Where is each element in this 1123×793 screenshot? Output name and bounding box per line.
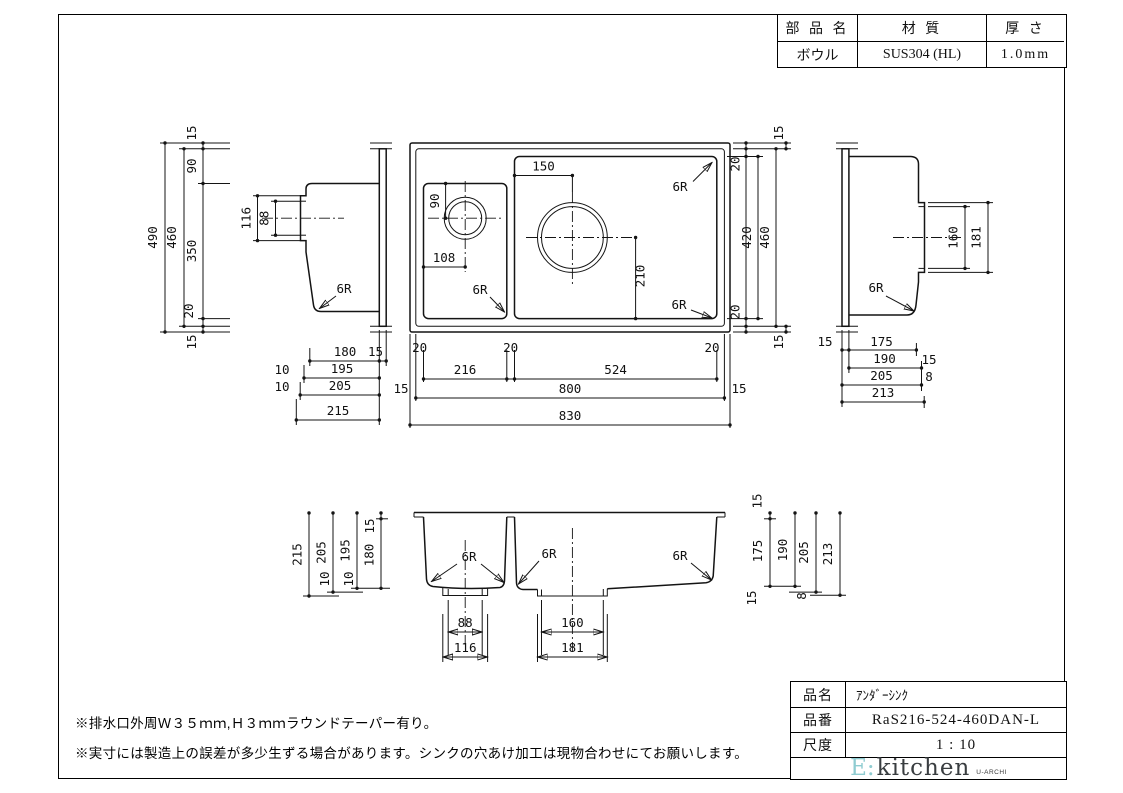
- spec-table: 部 品 名 材 質 厚 さ ボウル SUS304 (HL) 1.0mm: [777, 14, 1067, 68]
- logo: E:kitchen U-ARCHI: [791, 757, 1066, 777]
- dim-label: 181: [561, 640, 584, 655]
- dim-label: 15: [817, 334, 832, 349]
- dim-label: 10: [274, 362, 289, 377]
- spec-header-thickness: 厚 さ: [986, 15, 1064, 41]
- dim-label: 420: [739, 226, 754, 249]
- drawing-scale: 1 : 10: [845, 732, 1066, 757]
- dim-label: 215: [327, 403, 350, 418]
- dim-label: 8: [794, 592, 809, 600]
- dim-label: 160: [946, 226, 961, 249]
- front-left-chain: 215 205 195 180 15 10 10: [290, 513, 391, 596]
- dim-label: 20: [503, 340, 518, 355]
- radius-label: 6R: [671, 297, 687, 312]
- dim-label: 8: [925, 369, 933, 384]
- dim-label: 88: [257, 211, 272, 226]
- logo-prefix: E:: [850, 755, 875, 781]
- note-tolerance: ※実寸には製造上の誤差が多少生ずる場合があります。シンクの穴あけ加工は現物合わせ…: [75, 742, 748, 762]
- dim-label: 213: [872, 385, 895, 400]
- radius-label: 6R: [868, 280, 884, 295]
- logo-name: kitchen: [877, 755, 971, 781]
- dim-label: 160: [561, 615, 584, 630]
- dim-label: 90: [184, 158, 199, 173]
- dim-label: 15: [362, 518, 377, 533]
- dim-label: 524: [604, 362, 627, 377]
- dim-label: 116: [239, 207, 254, 230]
- spec-thickness: 1.0mm: [986, 41, 1064, 67]
- dim-label: 15: [393, 381, 408, 396]
- title-block: 品名 ｱﾝﾀﾞｰｼﾝｸ 品番 RaS216-524-460DAN-L 尺度 1 …: [790, 681, 1067, 780]
- dim-label: 350: [184, 240, 199, 263]
- dim-label: 460: [757, 226, 772, 249]
- dim-label: 15: [771, 125, 786, 140]
- dim-label: 190: [873, 351, 896, 366]
- front-view: 6R 6R 6R: [414, 513, 725, 653]
- title-label-number: 品番: [791, 707, 845, 732]
- dim-label: 210: [633, 265, 648, 288]
- dim-label: 205: [329, 378, 352, 393]
- dim-label: 15: [368, 344, 383, 359]
- dim-label: 10: [341, 571, 356, 586]
- radius-label: 6R: [461, 549, 477, 564]
- radius-label: 6R: [336, 281, 352, 296]
- dim-label: 460: [164, 226, 179, 249]
- dim-label: 116: [454, 640, 477, 655]
- dim-label: 20: [728, 156, 743, 171]
- right-side-bottom-chain: 15 175 190 15 205 8 213: [817, 330, 936, 408]
- dim-label: 195: [331, 361, 354, 376]
- left-side-bottom-chain: 180 15 195 10 205 10 215: [274, 330, 386, 425]
- left-side-view: 116 88 6R: [239, 149, 387, 326]
- dim-label: 20: [704, 340, 719, 355]
- radius-label: 6R: [541, 546, 557, 561]
- left-dim-chain: 490 460 15 90 350 20 15: [145, 125, 392, 349]
- dim-label: 195: [338, 539, 353, 562]
- dim-label: 20: [728, 304, 743, 319]
- title-label-scale: 尺度: [791, 732, 845, 757]
- dim-label: 10: [274, 379, 289, 394]
- dim-label: 15: [921, 352, 936, 367]
- drawing-sheet: 150 90 108 210 6R 6R 6R 116: [0, 0, 1123, 793]
- dim-label: 190: [775, 539, 790, 562]
- dim-label: 215: [290, 543, 305, 566]
- spec-material: SUS304 (HL): [857, 41, 986, 67]
- dim-label: 10: [317, 571, 332, 586]
- dim-label: 800: [559, 381, 582, 396]
- dim-label: 20: [412, 340, 427, 355]
- right-side-view: 160 181 6R: [842, 149, 993, 326]
- dim-label: 205: [796, 541, 811, 564]
- dim-label: 15: [184, 125, 199, 140]
- note-drain: ※排水口外周Ｗ３５ｍｍ,Ｈ３ｍｍラウンドテーパー有り。: [75, 712, 437, 732]
- dim-label: 205: [870, 368, 893, 383]
- radius-label: 6R: [672, 179, 688, 194]
- product-number: RaS216-524-460DAN-L: [845, 707, 1066, 732]
- dim-label: 20: [181, 303, 196, 318]
- dim-label: 88: [458, 615, 473, 630]
- front-right-chain: 15 175 190 205 213 15 8: [744, 493, 846, 605]
- right-dim-chain: 20 20 420 460 15 15: [727, 125, 858, 349]
- dim-label: 150: [532, 159, 555, 174]
- dim-label: 830: [559, 408, 582, 423]
- dim-label: 216: [454, 362, 477, 377]
- spec-header-part: 部 品 名: [778, 15, 857, 41]
- dim-label: 205: [314, 541, 329, 564]
- dim-label: 213: [820, 543, 835, 566]
- dim-label: 15: [731, 381, 746, 396]
- dim-label: 15: [744, 590, 759, 605]
- spec-part: ボウル: [778, 41, 857, 67]
- dim-label: 175: [870, 334, 893, 349]
- plan-bottom-chain: 20 20 20 216 524 800 15 15 830: [393, 334, 746, 428]
- dim-label: 108: [433, 250, 456, 265]
- dim-label: 175: [750, 540, 765, 563]
- technical-drawing: 150 90 108 210 6R 6R 6R 116: [0, 0, 1123, 793]
- title-label-name: 品名: [791, 682, 845, 707]
- plan-view: 150 90 108 210 6R 6R 6R: [410, 143, 730, 332]
- dim-label: 15: [750, 493, 765, 508]
- logo-sub: U-ARCHI: [976, 769, 1007, 776]
- front-drain-dims: 88 116 160 181: [443, 600, 608, 662]
- dim-label: 15: [771, 334, 786, 349]
- dim-label: 180: [334, 344, 357, 359]
- dim-label: 15: [184, 334, 199, 349]
- product-name: ｱﾝﾀﾞｰｼﾝｸ: [845, 682, 1066, 707]
- spec-header-material: 材 質: [857, 15, 986, 41]
- dim-label: 181: [969, 226, 984, 249]
- dim-label: 490: [145, 226, 160, 249]
- dim-label: 90: [427, 193, 442, 208]
- radius-label: 6R: [472, 282, 488, 297]
- dim-label: 180: [362, 544, 377, 567]
- radius-label: 6R: [672, 548, 688, 563]
